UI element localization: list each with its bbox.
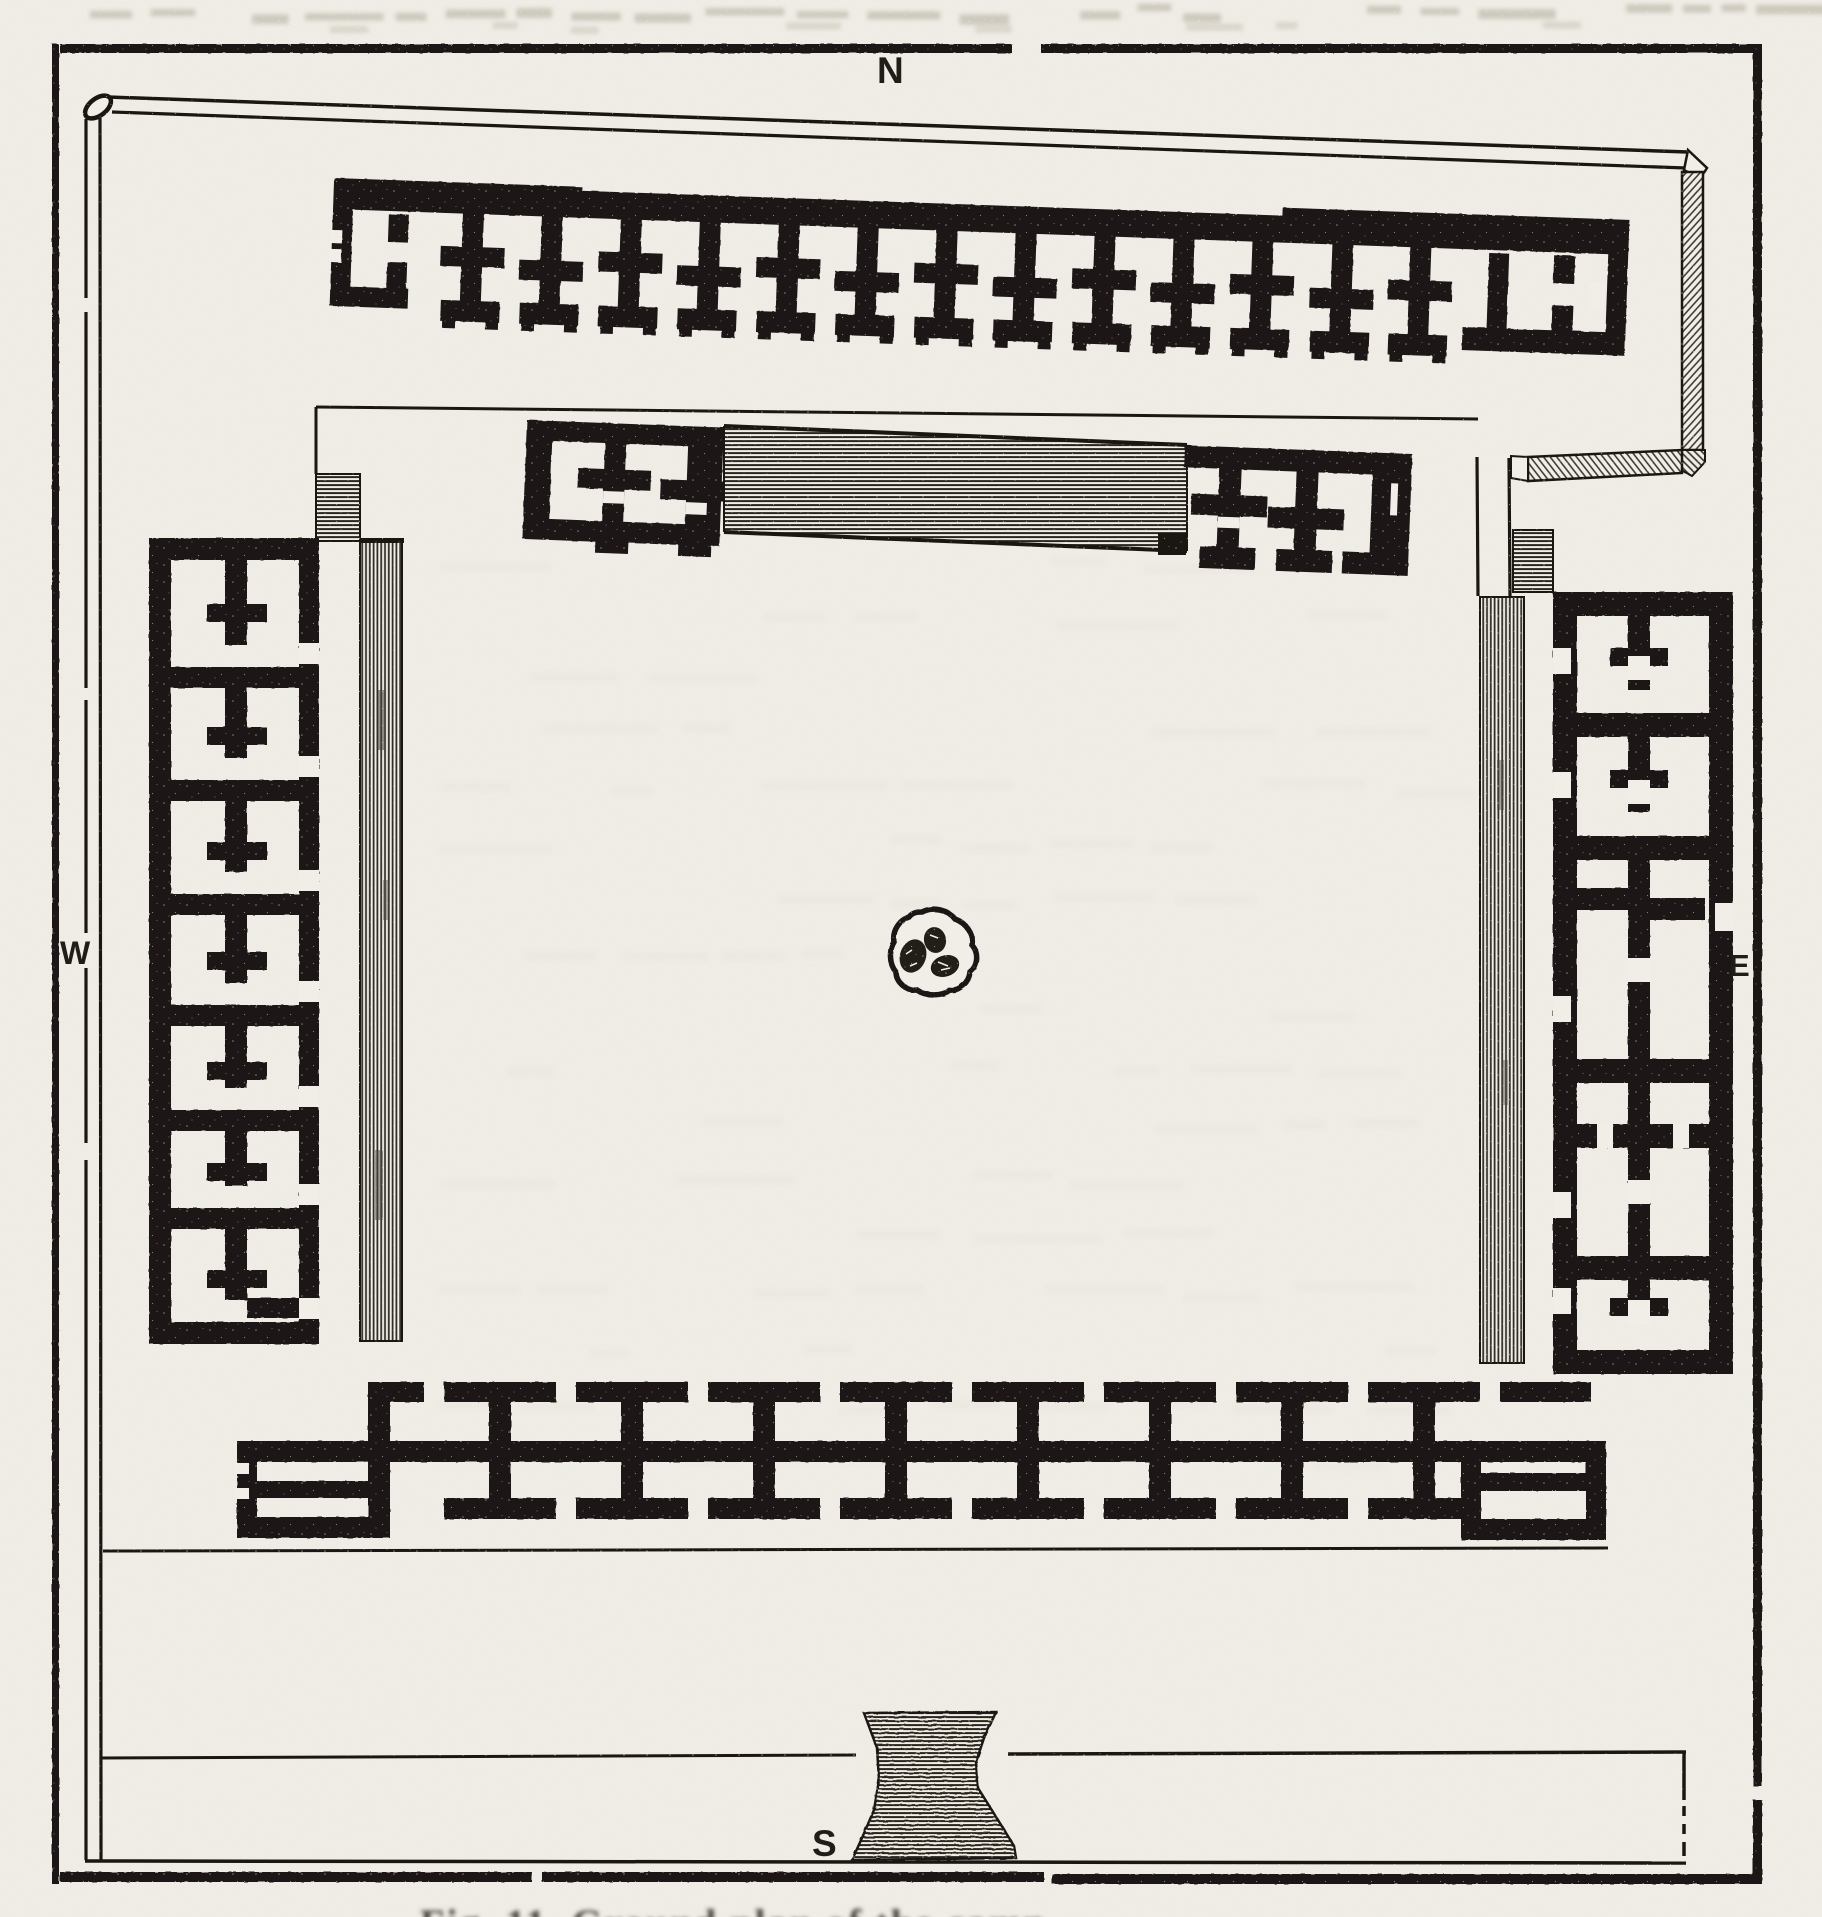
svg-text:Fig. 11. Ground plan of the c: Fig. 11. Ground plan of the camp (420, 1901, 1048, 1917)
svg-text:S: S (812, 1823, 837, 1864)
svg-text:N: N (877, 50, 904, 91)
svg-text:E: E (1729, 948, 1750, 983)
svg-text:W: W (60, 935, 91, 971)
